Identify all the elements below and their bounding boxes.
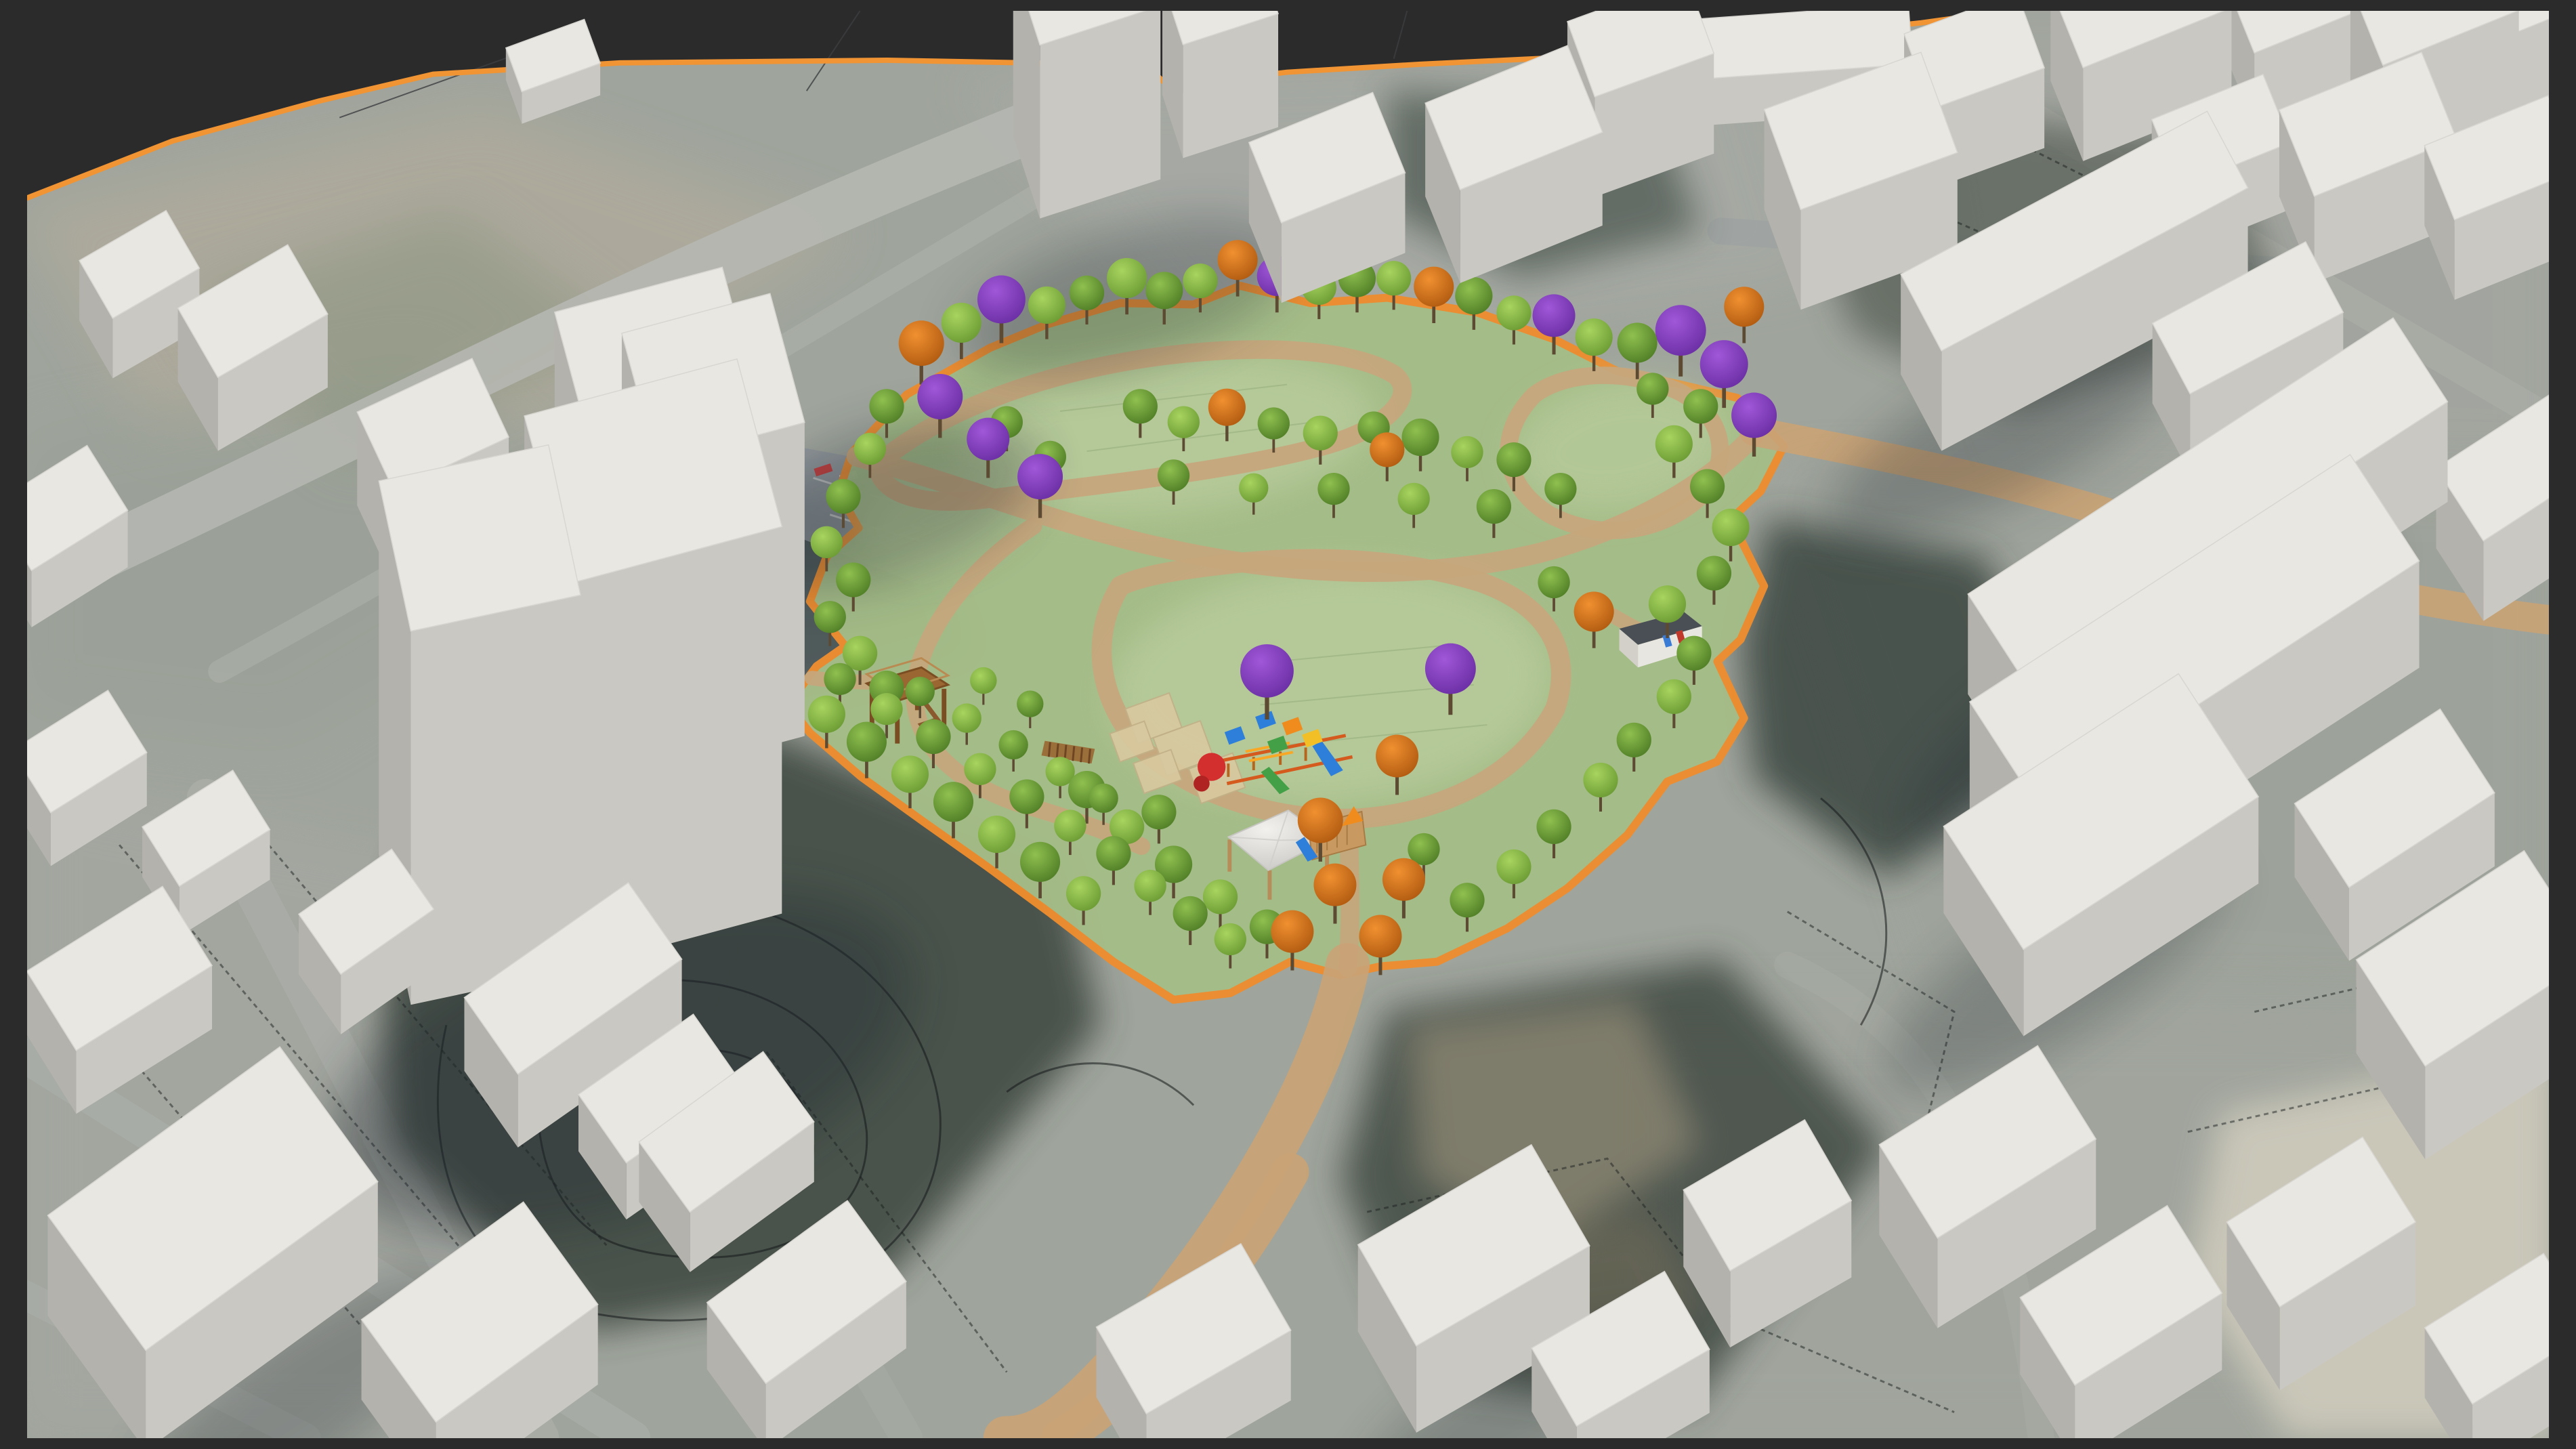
scene-canvas — [27, 11, 2549, 1438]
viewport-3d-park-render[interactable] — [27, 11, 2549, 1438]
